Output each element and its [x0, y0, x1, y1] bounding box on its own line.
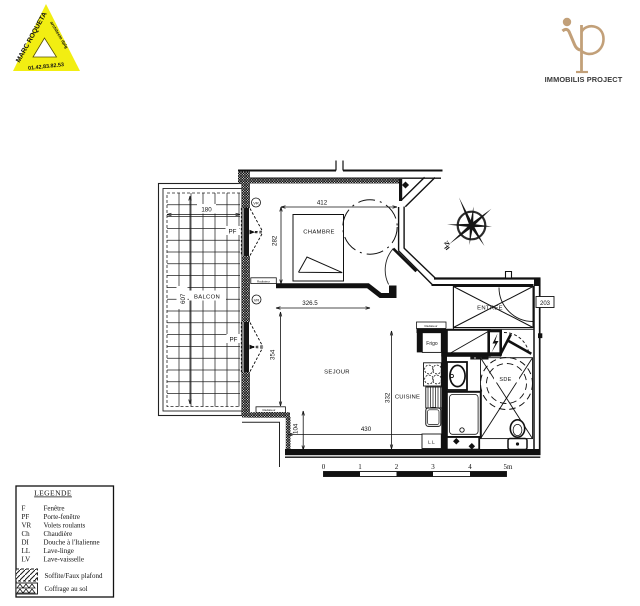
svg-text:PF: PF	[230, 337, 238, 344]
svg-text:LV: LV	[22, 556, 31, 564]
svg-text:CUISINE: CUISINE	[395, 395, 420, 401]
svg-text:SEJOUR: SEJOUR	[324, 370, 350, 376]
svg-text:Coffrage au sol: Coffrage au sol	[45, 585, 88, 593]
svg-text:Radiateur: Radiateur	[424, 324, 437, 328]
svg-text:5m: 5m	[504, 463, 514, 471]
svg-text:0: 0	[322, 463, 326, 471]
svg-text:LEGENDE: LEGENDE	[34, 489, 72, 498]
svg-text:104: 104	[293, 423, 300, 434]
svg-text:282: 282	[272, 235, 279, 246]
svg-text:326.5: 326.5	[302, 300, 318, 307]
svg-text:180: 180	[201, 207, 212, 214]
svg-text:Radiateur: Radiateur	[257, 279, 270, 283]
svg-text:PF: PF	[22, 513, 30, 521]
svg-text:430: 430	[361, 426, 372, 433]
svg-text:VR: VR	[253, 201, 259, 206]
svg-text:Fenêtre: Fenêtre	[44, 505, 65, 513]
svg-text:VR: VR	[22, 522, 32, 530]
svg-text:354: 354	[270, 349, 277, 360]
svg-text:2: 2	[395, 463, 399, 471]
svg-text:F: F	[22, 505, 26, 513]
svg-text:1: 1	[358, 463, 362, 471]
svg-text:607: 607	[180, 293, 187, 304]
svg-text:203: 203	[540, 301, 551, 307]
svg-text:Lave-vaisselle: Lave-vaisselle	[44, 556, 84, 564]
svg-text:4: 4	[468, 463, 472, 471]
svg-text:332: 332	[385, 392, 392, 403]
svg-text:PF: PF	[229, 229, 237, 236]
svg-text:ENTREE: ENTREE	[477, 306, 503, 312]
svg-text:BALCON: BALCON	[194, 294, 220, 300]
svg-text:LL: LL	[22, 547, 31, 555]
svg-text:Porte-fenêtre: Porte-fenêtre	[44, 513, 81, 521]
svg-text:Frigo: Frigo	[426, 341, 438, 347]
svg-text:Chaudière: Chaudière	[44, 530, 73, 538]
svg-text:IMMOBILIS PROJECT: IMMOBILIS PROJECT	[545, 75, 623, 84]
svg-text:Volets roulants: Volets roulants	[44, 522, 86, 530]
svg-text:Lave-linge: Lave-linge	[44, 547, 74, 555]
svg-text:L.L.: L.L.	[428, 440, 436, 445]
svg-text:3: 3	[431, 463, 435, 471]
svg-text:Radiateur: Radiateur	[262, 408, 275, 412]
svg-text:VR: VR	[254, 298, 260, 303]
svg-text:Douche à l'Italienne: Douche à l'Italienne	[44, 539, 100, 547]
svg-text:Ch: Ch	[22, 530, 31, 538]
svg-text:SDE: SDE	[499, 377, 511, 383]
svg-text:DI: DI	[22, 539, 30, 547]
svg-text:CHAMBRE: CHAMBRE	[303, 230, 335, 236]
svg-text:Soffite/Faux plafond: Soffite/Faux plafond	[45, 572, 104, 580]
svg-text:412: 412	[317, 200, 328, 207]
